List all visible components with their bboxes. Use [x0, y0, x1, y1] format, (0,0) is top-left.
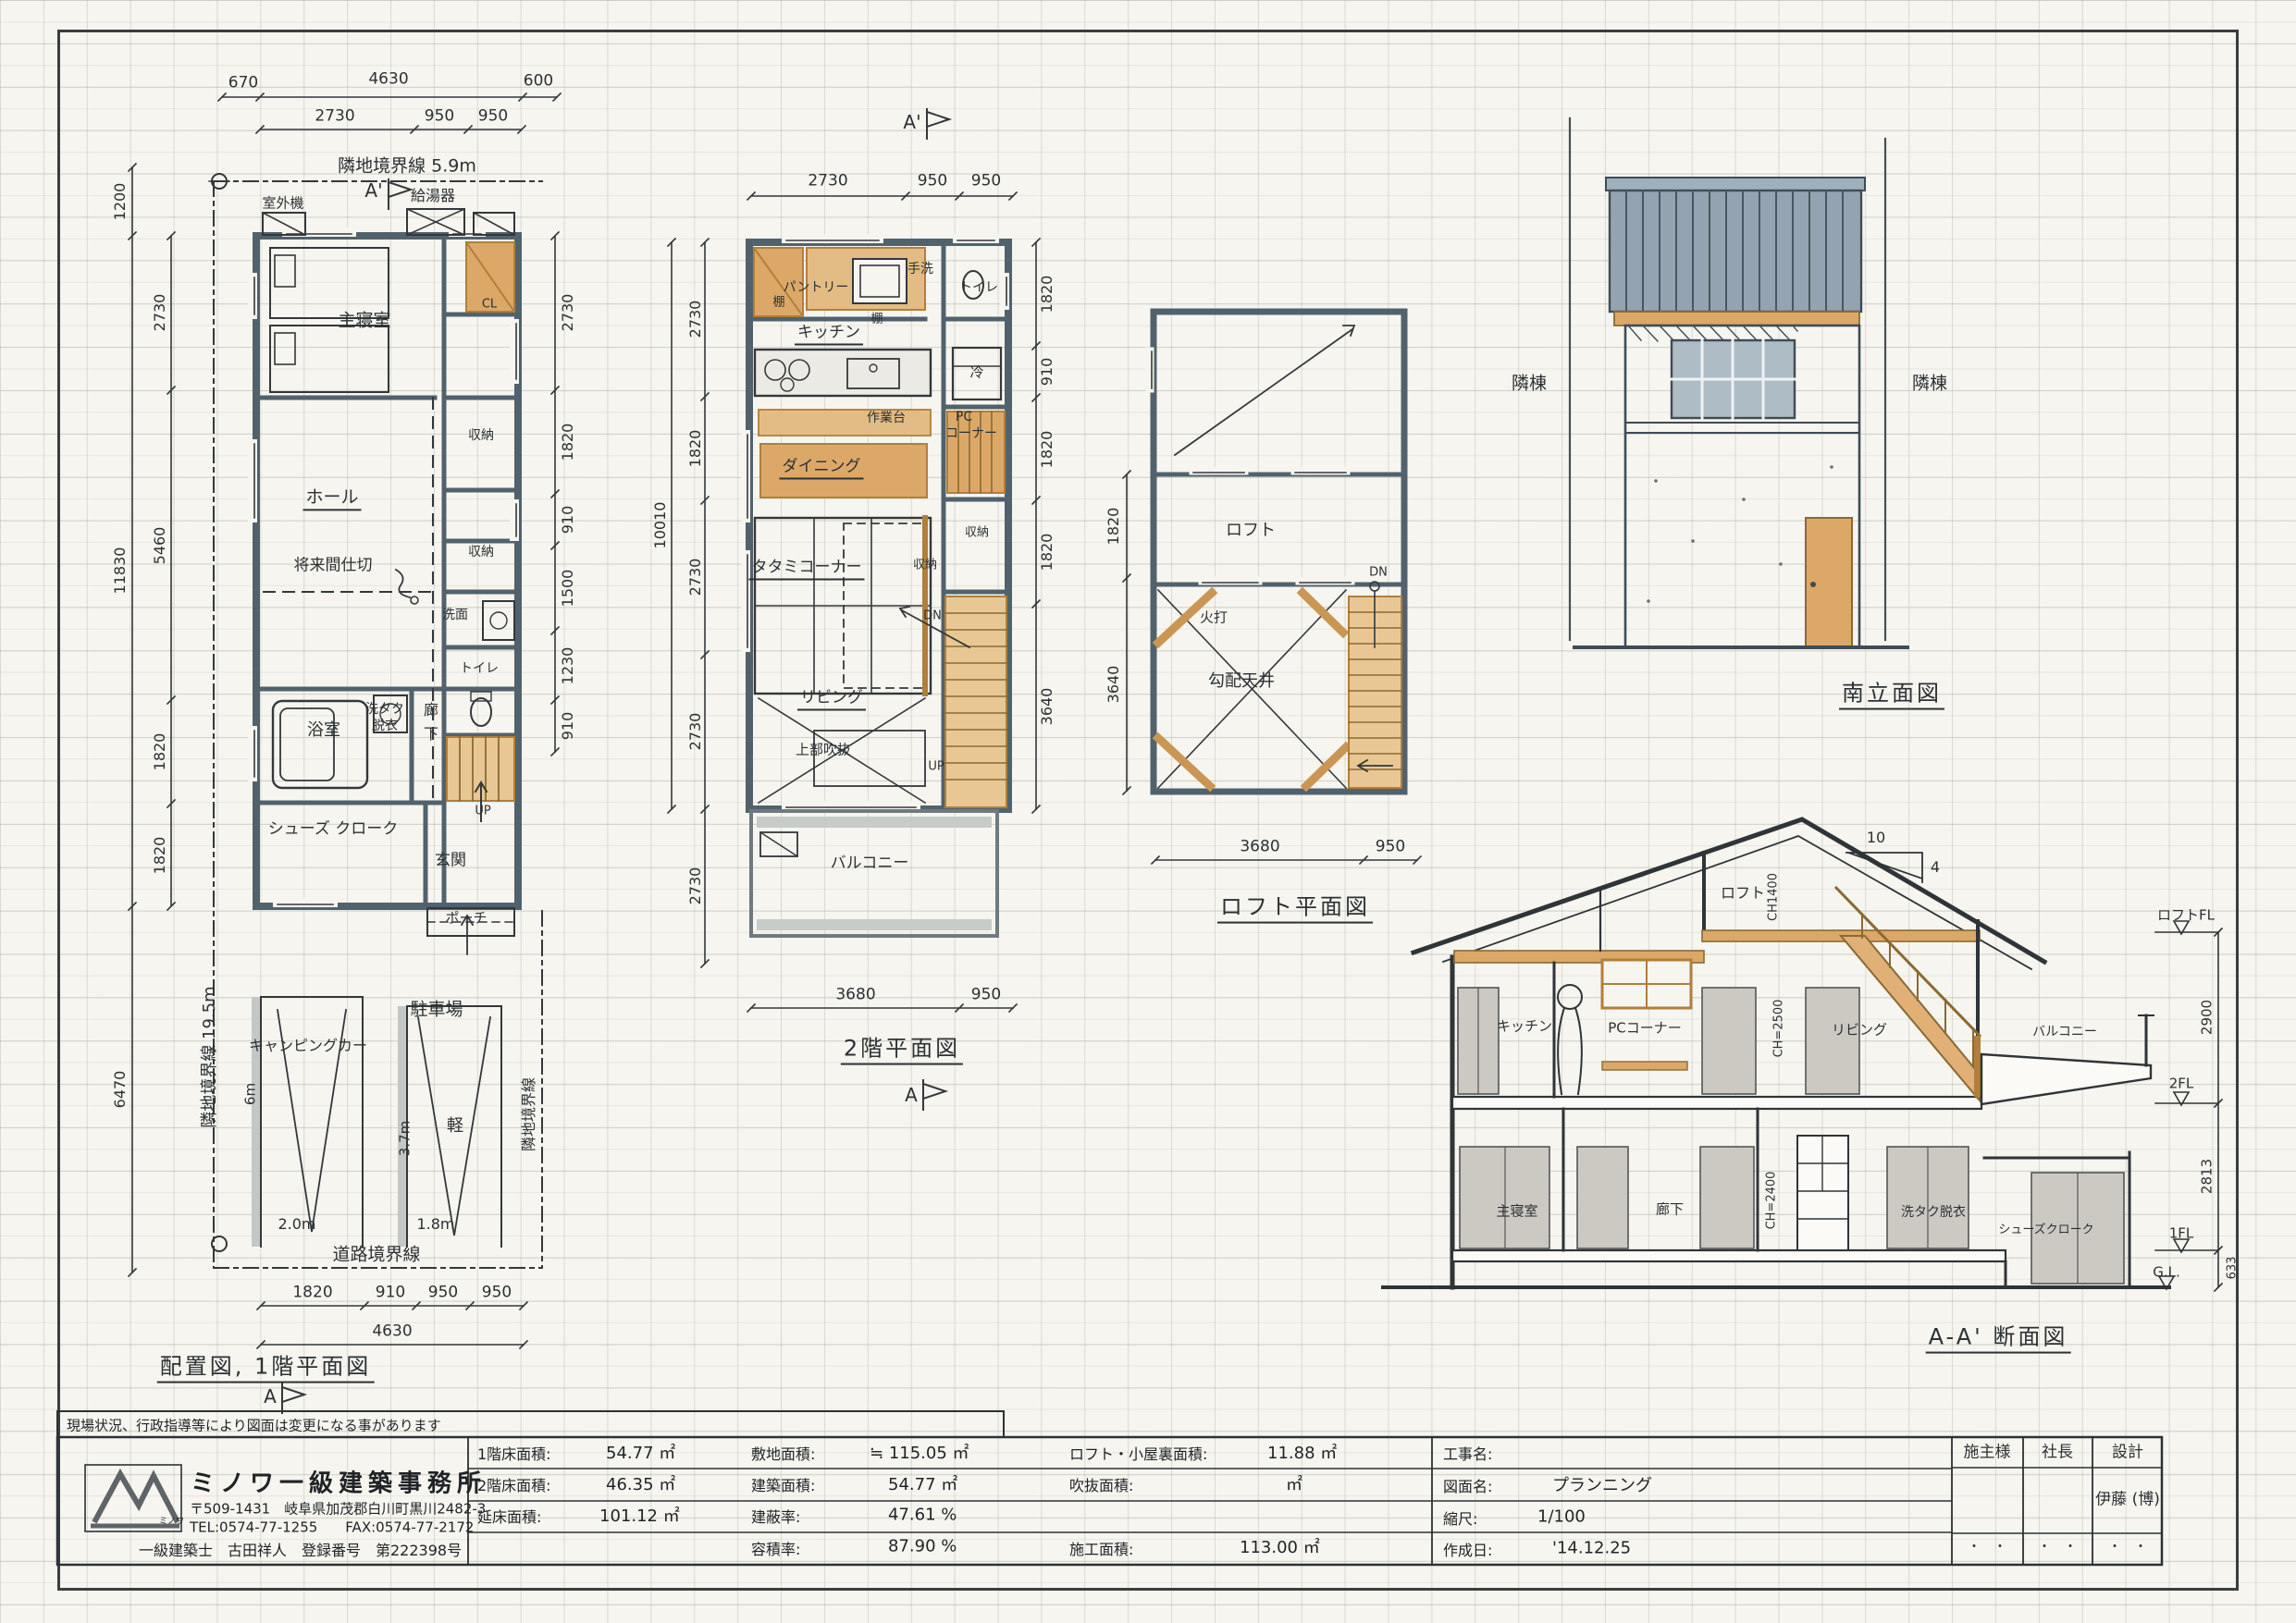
company-address: 〒509-1431 岐阜県加茂郡白川町黒川2482-3: [190, 1499, 486, 1518]
dim-1200: 1200: [112, 183, 129, 221]
sign-date-dots: ・ ・: [2038, 1541, 2077, 1555]
section-room-corridor: 廊下: [1656, 1202, 1684, 1218]
designer-name: 伊藤 (博): [2095, 1491, 2160, 1508]
room-laundry: 洗タク: [365, 703, 404, 718]
area-2f-value: 46.35 ㎡: [606, 1471, 675, 1495]
section-marker-a-prime: A': [364, 180, 382, 201]
room-storage: 収納: [965, 527, 989, 541]
loft-area-label: ロフト・小屋裏面積:: [1069, 1442, 1207, 1464]
future-partition-label: 将来間仕切: [294, 557, 373, 574]
dim-2730: 2730: [808, 172, 847, 190]
dim-633: 633: [2227, 1257, 2240, 1280]
project-name-label: 工事名:: [1443, 1442, 1492, 1464]
section-title: A-A' 断面図: [1926, 1325, 2071, 1354]
dim-950: 950: [425, 107, 454, 125]
room-storage: 収納: [468, 546, 494, 560]
room-entry: 玄関: [435, 852, 466, 869]
revision-note: 現場状況、行政指導等により図面は変更になる事があります: [67, 1416, 441, 1435]
room-pc-corner: コーナー: [945, 427, 997, 442]
section-room-loft: ロフト: [1721, 885, 1765, 902]
site-1f-linework: [129, 93, 561, 1413]
building-area-label: 建築面積:: [751, 1473, 815, 1495]
room-laundry: 脱衣: [372, 719, 398, 734]
dim-670: 670: [228, 74, 258, 92]
site-parking-label: 駐車場: [410, 1000, 463, 1019]
scale-label: 縮尺:: [1443, 1506, 1477, 1529]
company-name: ミノワ一級建築事務所: [191, 1465, 487, 1499]
room-master-bedroom: 主寝室: [338, 311, 390, 330]
level-2fl: 2FL: [2169, 1076, 2194, 1092]
loft-area-value: 11.88 ㎡: [1267, 1440, 1337, 1464]
coverage-ratio-label: 建蔽率:: [751, 1505, 800, 1527]
room-toilet: トイレ: [959, 281, 998, 296]
neighbor-building-label: 隣棟: [1512, 374, 1547, 393]
elevation-title: 南立面図: [1839, 682, 1944, 710]
room-dining: ダイニング: [780, 458, 864, 479]
dim-1820: 1820: [292, 1284, 332, 1301]
loft-linework: [1150, 312, 1404, 792]
plan2f-title: 2階平面図: [841, 1037, 963, 1065]
dim-1820: 1820: [1039, 431, 1055, 469]
drawing-name-value: プランニング: [1552, 1472, 1652, 1496]
section-marker-a: A: [264, 1386, 277, 1407]
dim-3640: 3640: [1039, 688, 1055, 726]
dim-2730: 2730: [687, 713, 704, 751]
room-kitchen: キッチン: [795, 324, 863, 345]
dim-1500: 1500: [560, 570, 576, 608]
loft-title: ロフト平面図: [1217, 895, 1373, 924]
shelf-label: 棚: [870, 314, 883, 327]
dim-1820: 1820: [560, 424, 576, 461]
section-room-kitchen: キッチン: [1497, 1019, 1552, 1035]
coverage-ratio-value: 47.61 %: [888, 1506, 957, 1525]
company-tel-fax: TEL:0574-77-1255 FAX:0574-77-2172: [190, 1518, 474, 1537]
stairs-dn-label: DN: [923, 610, 942, 624]
handwash-label: 手洗: [907, 263, 933, 277]
dim-10010: 10010: [652, 502, 669, 549]
dim-950: 950: [428, 1284, 458, 1301]
site-dim-2m: 2.0m: [278, 1216, 315, 1233]
void-above-label: 上部吹抜: [796, 743, 851, 758]
dim-3680: 3680: [1240, 838, 1279, 855]
dim-2730: 2730: [152, 294, 168, 332]
ceiling-height-2f: CH=2500: [1773, 1000, 1787, 1058]
room-bath: 浴室: [307, 721, 340, 740]
section-balcony: バルコニー: [2032, 1026, 2097, 1040]
sign-designer-header: 設計: [2112, 1444, 2143, 1461]
boundary-road-label: 道路境界線: [332, 1245, 420, 1264]
dim-950: 950: [918, 172, 947, 190]
section-room-pc-corner: PCコーナー: [1608, 1021, 1682, 1037]
roof-slope-run: 10: [1867, 830, 1885, 846]
plan1f-title: 配置図, 1階平面図: [157, 1355, 375, 1383]
dim-4630: 4630: [368, 70, 408, 88]
sign-owner-header: 施主様: [1964, 1444, 2011, 1461]
dim-910: 910: [560, 712, 576, 741]
level-gl: G.L.: [2153, 1265, 2180, 1281]
floor-area-ratio-value: 87.90 %: [888, 1537, 957, 1556]
area-1f-value: 54.77 ㎡: [606, 1440, 675, 1464]
outdoor-unit-label: 室外機: [262, 196, 303, 212]
area-1f-label: 1階床面積:: [477, 1442, 551, 1464]
dim-1230: 1230: [560, 647, 576, 685]
dim-1820: 1820: [687, 430, 704, 468]
dim-2900: 2900: [2200, 1000, 2216, 1035]
ceiling-height-1f: CH=2400: [1766, 1172, 1780, 1230]
site-dim-6m: 6m: [243, 1083, 259, 1105]
floor-area-ratio-label: 容積率:: [751, 1537, 800, 1559]
dim-950: 950: [482, 1284, 512, 1301]
dim-2730: 2730: [560, 294, 576, 332]
fridge-label: 冷: [969, 365, 983, 381]
dim-2813: 2813: [2200, 1159, 2216, 1194]
dim-600: 600: [524, 72, 553, 90]
room-washroom: 洗面: [442, 609, 468, 623]
dim-950: 950: [971, 172, 1001, 190]
dim-950: 950: [478, 107, 508, 125]
date-value: '14.12.25: [1552, 1539, 1631, 1558]
boundary-north-label: 隣地境界線 5.9m: [338, 156, 476, 176]
section-marker-a-prime: A': [903, 112, 920, 132]
stairs-dn-label: DN: [1369, 567, 1388, 581]
ceiling-height-loft: CH1400: [1768, 873, 1782, 921]
architect-license: 一級建築士 古田祥人 登録番号 第222398号: [139, 1538, 462, 1560]
site-dim-37m: 3.7m: [398, 1121, 414, 1156]
void-area-value: ㎡: [1286, 1471, 1302, 1495]
section-room-master: 主寝室: [1496, 1204, 1537, 1220]
scale-value: 1/100: [1537, 1507, 1586, 1527]
room-hall: ホール: [302, 487, 361, 510]
dim-2730: 2730: [687, 867, 704, 905]
dim-6470: 6470: [112, 1071, 129, 1109]
dim-11830: 11830: [112, 547, 129, 595]
dim-950: 950: [971, 986, 1001, 1003]
dim-910: 910: [1039, 358, 1055, 387]
dim-3680: 3680: [835, 986, 875, 1003]
sign-president-header: 社長: [2042, 1444, 2073, 1461]
dim-950: 950: [1376, 838, 1405, 855]
level-loft-fl: ロフトFL: [2157, 908, 2215, 924]
sign-date-dots: ・ ・: [1968, 1541, 2006, 1555]
logo-caption: ミノワ: [159, 1515, 184, 1527]
room-living: リビング: [797, 689, 866, 710]
stairs-up-label: UP: [475, 805, 490, 819]
room-corridor: 下: [424, 726, 438, 743]
shelf-label: 棚: [772, 297, 784, 311]
building-area-value: 54.77 ㎡: [888, 1471, 957, 1495]
neighbor-building-label: 隣棟: [1912, 374, 1947, 393]
room-corridor: 廊: [424, 702, 438, 719]
date-label: 作成日:: [1443, 1538, 1492, 1560]
room-loft: ロフト: [1226, 522, 1276, 540]
dim-910: 910: [560, 506, 576, 535]
sign-date-dots: ・ ・: [2108, 1541, 2147, 1555]
dim-1820: 1820: [152, 733, 168, 771]
level-1fl: 1FL: [2169, 1226, 2194, 1242]
dim-1820: 1820: [152, 837, 168, 875]
section-room-living: リビング: [1832, 1023, 1887, 1039]
room-tatami-corner: タタミコーナー: [749, 559, 865, 580]
dim-910: 910: [376, 1284, 405, 1301]
sloped-ceiling-label: 勾配天井: [1208, 672, 1275, 691]
site-kei-car-label: 軽: [447, 1117, 463, 1136]
site-dim-18m: 1.8m: [416, 1216, 454, 1233]
dim-3640: 3640: [1105, 666, 1122, 704]
area-total-value: 101.12 ㎡: [599, 1503, 680, 1527]
dim-2730: 2730: [315, 107, 354, 125]
drawing-name-label: 図面名:: [1443, 1474, 1492, 1496]
area-total-label: 延床面積:: [477, 1505, 541, 1527]
section-linework: [1383, 819, 2222, 1291]
section-room-shoes: シューズクローク: [1998, 1224, 2093, 1238]
roof-slope-rise: 4: [1931, 859, 1940, 876]
room-shoes-cloak: シューズ クローク: [268, 820, 399, 838]
section-marker-a: A: [905, 1085, 918, 1105]
plan2f-linework: [668, 109, 1421, 1110]
section-room-laundry: 洗タク脱衣: [1901, 1206, 1966, 1221]
dim-5460: 5460: [152, 527, 168, 565]
void-area-label: 吹抜面積:: [1069, 1473, 1133, 1495]
worktop-label: 作業台: [867, 412, 906, 426]
room-closet: CL: [482, 299, 497, 313]
room-storage: 収納: [468, 429, 494, 444]
dim-2730: 2730: [687, 301, 704, 338]
area-2f-label: 2階床面積:: [477, 1473, 551, 1495]
brace-label: 火打: [1200, 610, 1228, 626]
site-camper-label: キャンピングカー: [249, 1038, 367, 1054]
stairs-up-label: UP: [928, 761, 944, 775]
elevation-linework: [1570, 118, 1907, 647]
dim-1820: 1820: [1039, 534, 1055, 572]
room-pantry: パントリー: [784, 281, 849, 296]
boundary-east-label: 隣地境界線: [521, 1077, 537, 1151]
room-toilet: トイレ: [460, 662, 499, 677]
room-balcony: バルコニー: [831, 855, 909, 872]
site-area-value: ≒ 115.05 ㎡: [870, 1440, 969, 1464]
dim-4630: 4630: [372, 1322, 412, 1340]
room-porch: ポーチ: [445, 911, 487, 927]
construction-area-label: 施工面積:: [1069, 1537, 1133, 1559]
dim-1820: 1820: [1105, 508, 1122, 546]
architectural-drawing-sheet: 670 4630 600 2730 950 950 隣地境界線 5.9m A' …: [0, 0, 2296, 1623]
boundary-west-label: 隣地境界線 19.5m: [201, 986, 219, 1127]
room-pc-corner: PC: [956, 411, 972, 425]
site-area-label: 敷地面積:: [751, 1442, 815, 1464]
dim-2730: 2730: [687, 559, 704, 596]
room-storage: 収納: [913, 559, 937, 573]
dim-1820: 1820: [1039, 276, 1055, 314]
water-heater-label: 給湯器: [411, 188, 455, 204]
construction-area-value: 113.00 ㎡: [1240, 1534, 1320, 1558]
